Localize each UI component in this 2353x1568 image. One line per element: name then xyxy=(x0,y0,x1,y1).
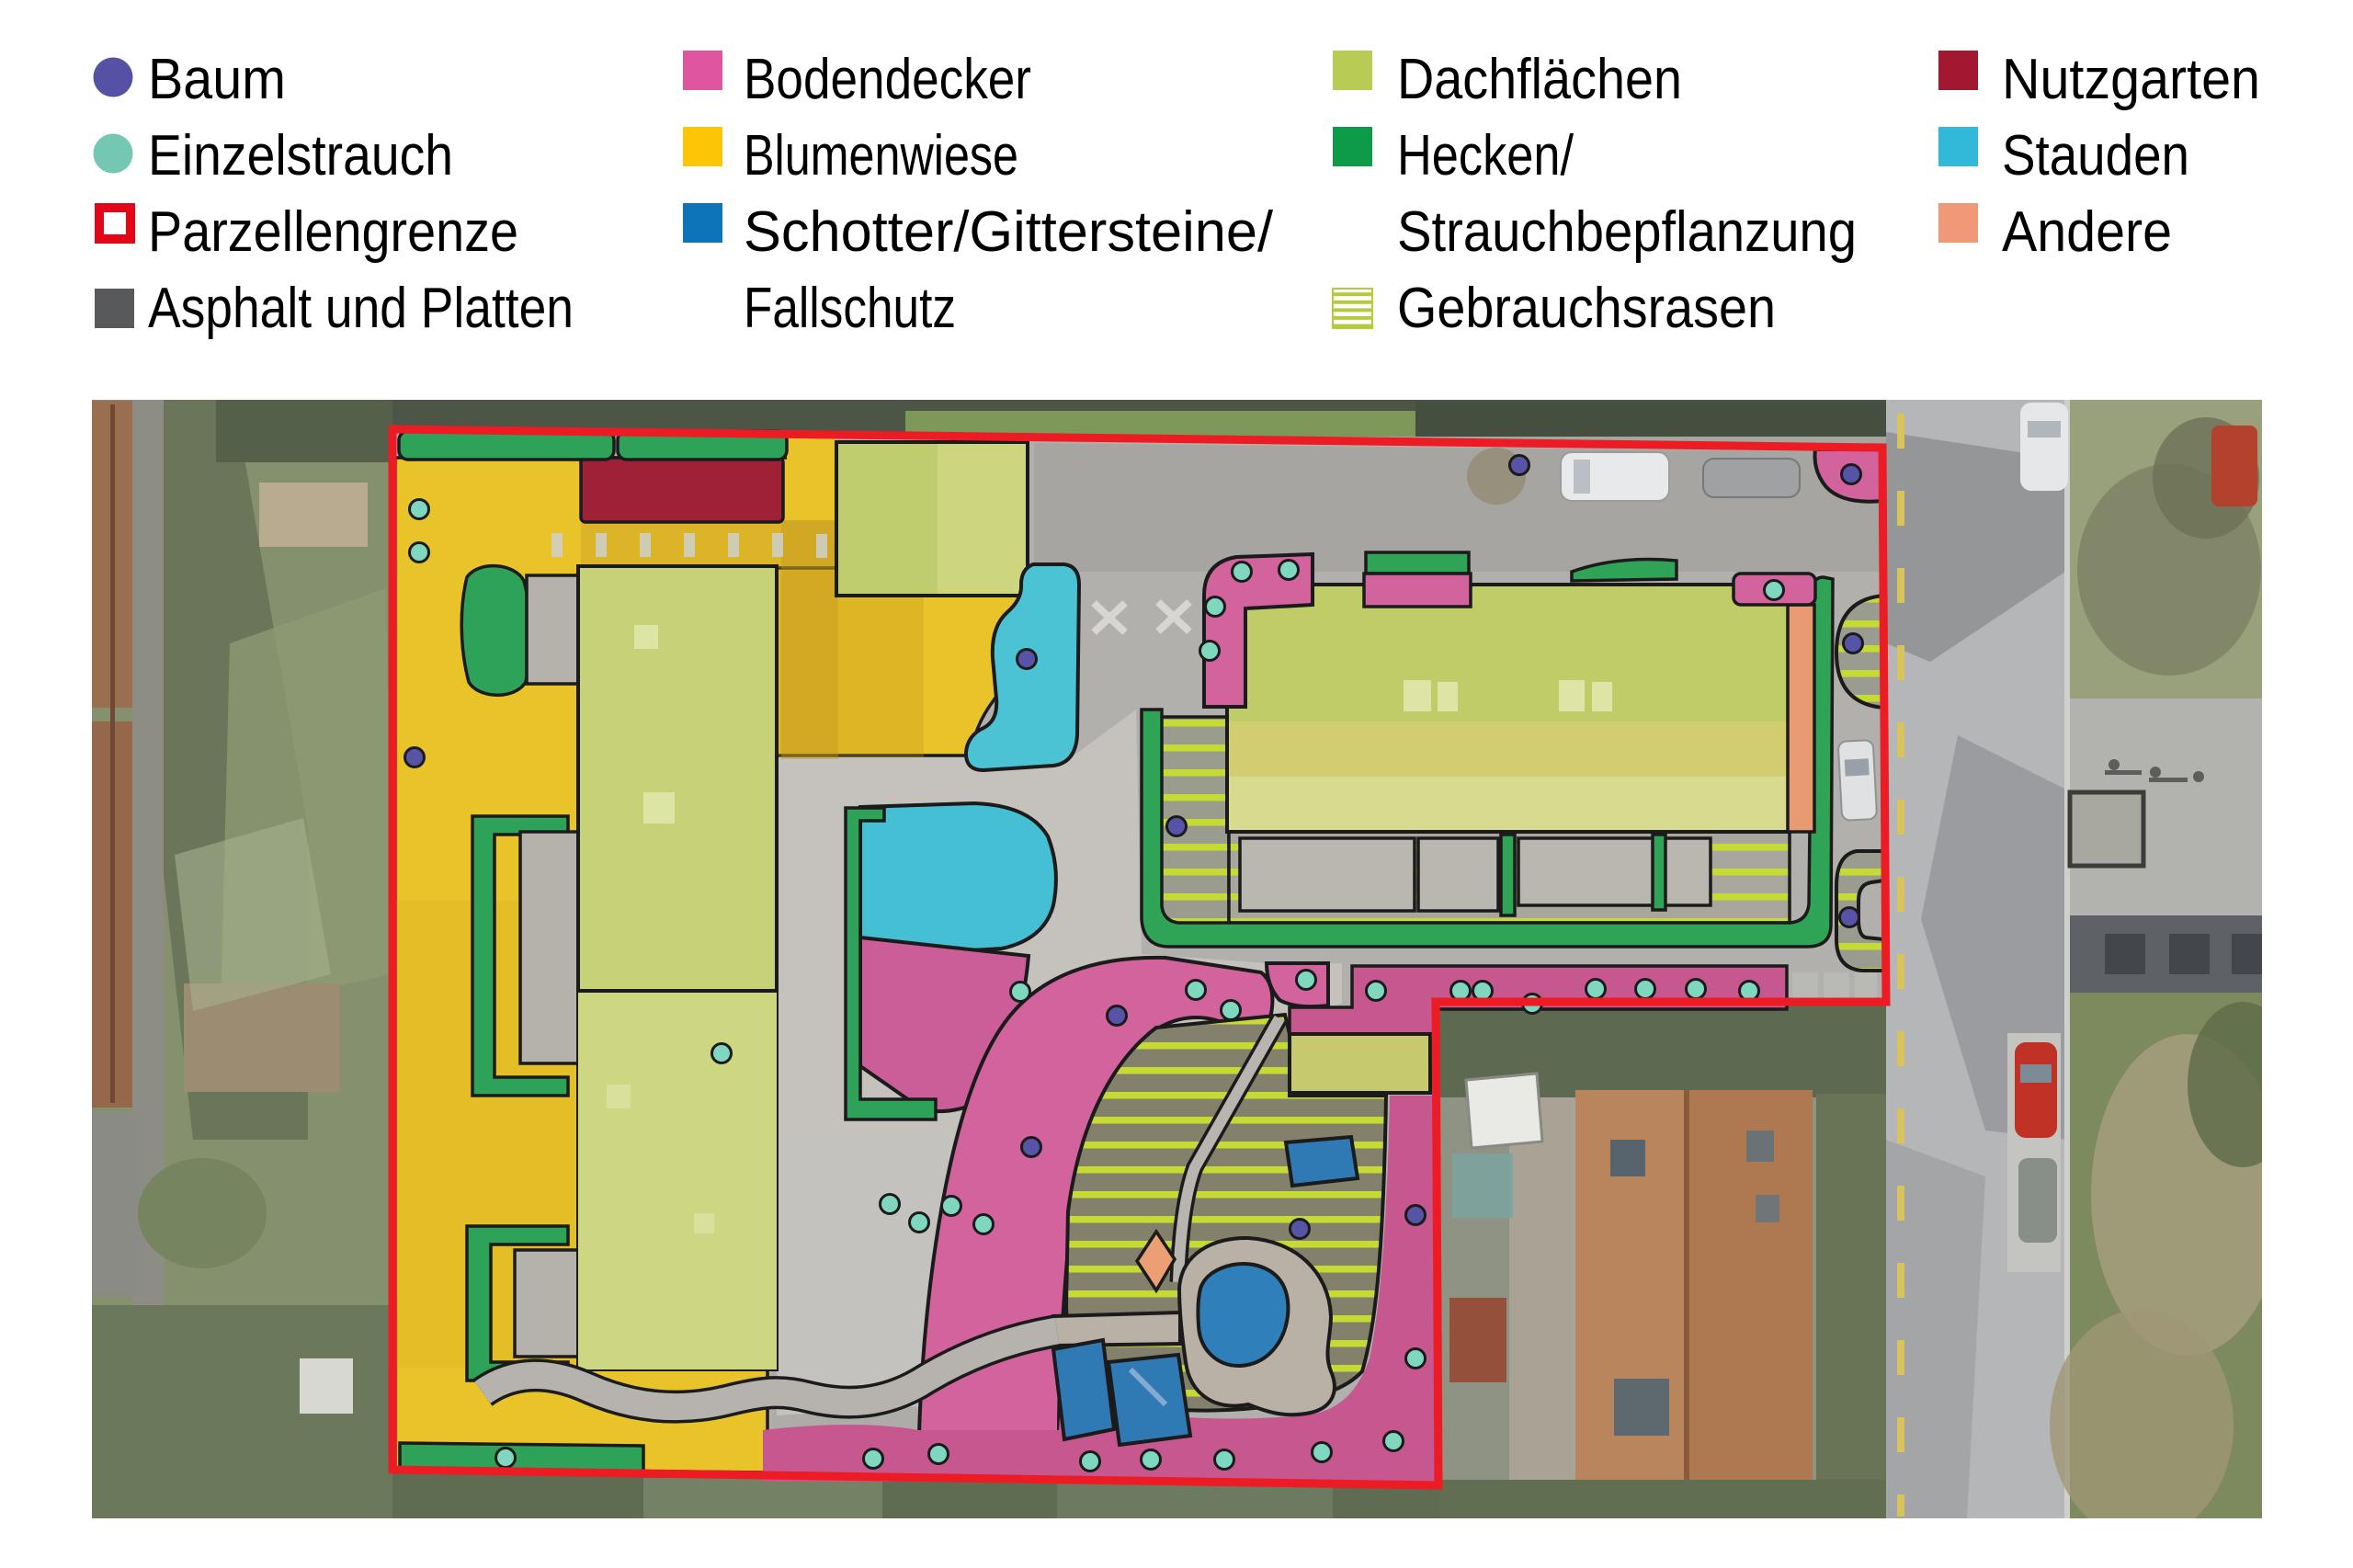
svg-text:Gebrauchsrasen: Gebrauchsrasen xyxy=(1397,277,1776,340)
svg-text:Bodendecker: Bodendecker xyxy=(744,48,1031,111)
svg-text:Stauden: Stauden xyxy=(2002,124,2189,187)
svg-text:Einzelstrauch: Einzelstrauch xyxy=(148,124,453,187)
svg-text:Andere: Andere xyxy=(2002,200,2172,264)
svg-text:Schotter/Gittersteine/: Schotter/Gittersteine/ xyxy=(744,200,1274,264)
svg-text:Blumenwiese: Blumenwiese xyxy=(744,124,1018,187)
svg-text:Fallschutz: Fallschutz xyxy=(744,277,956,340)
svg-text:Dachflächen: Dachflächen xyxy=(1397,48,1682,111)
svg-text:Parzellengrenze: Parzellengrenze xyxy=(148,200,518,264)
svg-text:Hecken/: Hecken/ xyxy=(1397,124,1574,187)
svg-text:Asphalt und Platten: Asphalt und Platten xyxy=(148,277,574,340)
svg-text:Strauchbepflanzung: Strauchbepflanzung xyxy=(1397,200,1857,264)
svg-text:Baum: Baum xyxy=(148,48,286,111)
svg-text:Nutzgarten: Nutzgarten xyxy=(2002,48,2260,111)
